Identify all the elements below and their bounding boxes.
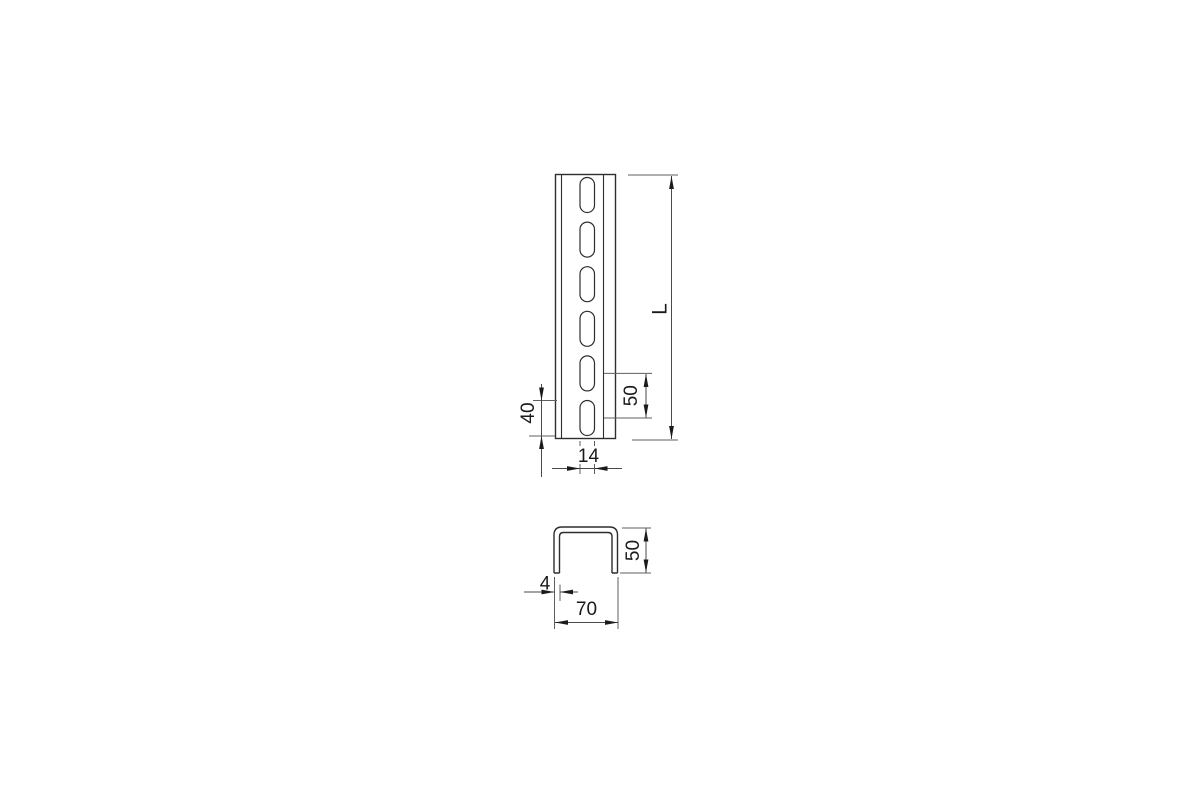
slot bbox=[580, 267, 595, 302]
section-outline bbox=[554, 527, 618, 573]
dim-label-section-height: 50 bbox=[623, 540, 644, 561]
dim-label-thickness: 4 bbox=[540, 574, 551, 595]
arrowhead-up-icon bbox=[669, 176, 674, 189]
slot bbox=[580, 401, 595, 436]
dim-slot-pitch: 50 bbox=[604, 373, 652, 418]
arrowhead-left-icon bbox=[560, 590, 573, 595]
arrowhead-down-icon bbox=[669, 426, 674, 439]
slot bbox=[580, 222, 595, 257]
dim-label-section-width: 70 bbox=[576, 599, 597, 620]
slot bbox=[580, 311, 595, 346]
drawing-canvas: L 50 40 14 50 bbox=[0, 0, 1200, 800]
dim-label-slot-pitch: 50 bbox=[621, 385, 642, 406]
section-view bbox=[554, 527, 618, 573]
front-view bbox=[556, 175, 616, 439]
dim-label-slot-length: 40 bbox=[518, 402, 539, 423]
arrowhead-right-icon bbox=[605, 620, 618, 625]
slot bbox=[580, 356, 595, 391]
dim-thickness: 4 bbox=[524, 574, 578, 601]
dim-label-length: L bbox=[648, 303, 671, 315]
front-view-outline bbox=[556, 175, 616, 439]
dim-slot-width: 14 bbox=[552, 441, 622, 474]
arrowhead-up-icon bbox=[644, 529, 649, 542]
arrowhead-down-icon bbox=[644, 405, 649, 418]
dim-label-slot-width: 14 bbox=[578, 446, 600, 467]
dim-section-height: 50 bbox=[620, 528, 651, 573]
technical-drawing: L 50 40 14 50 bbox=[0, 0, 1200, 800]
dim-section-width: 70 bbox=[555, 577, 619, 629]
arrowhead-left-icon bbox=[555, 620, 568, 625]
arrowhead-down-icon bbox=[539, 388, 544, 401]
slot bbox=[580, 178, 595, 213]
arrowhead-down-icon bbox=[644, 560, 649, 573]
arrowhead-up-icon bbox=[644, 374, 649, 387]
arrowhead-up-icon bbox=[539, 436, 544, 449]
dim-slot-length: 40 bbox=[518, 384, 557, 477]
